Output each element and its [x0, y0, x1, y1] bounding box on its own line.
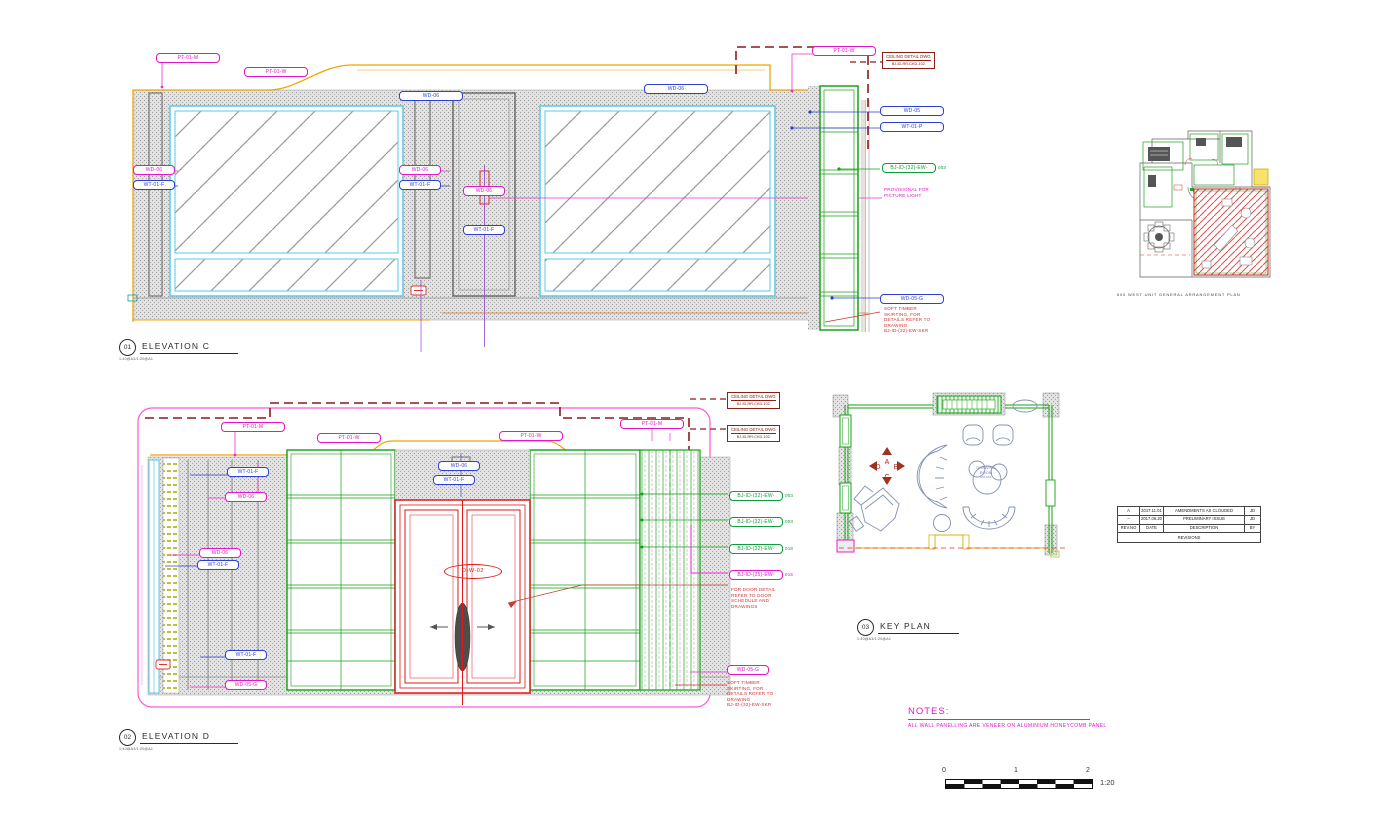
tag-wd06-c-top2: WD-06 — [644, 84, 708, 94]
rev-by: JD — [1245, 507, 1260, 515]
note-provisional: PROVISIONAL FOR PICTURE LIGHT — [884, 187, 929, 198]
ceiling-detail-ref-d1: CEILING DETAIL DWG BJ-ID-RR-CKD-102 — [727, 392, 780, 409]
ceiling-detail-ref-c: CEILING DETAIL DWG BJ-ID-RR-CKD-102 — [882, 52, 935, 69]
scale-ratio: 1:20 — [1100, 778, 1115, 787]
rev-date: 2017.11.01 — [1140, 507, 1164, 515]
elevation-c-drawing — [120, 40, 890, 362]
title-key-plan: 03 KEY PLAN — [857, 619, 959, 636]
cei-line1: CEILING DETAIL DWG — [731, 427, 776, 433]
tag-pt01m-d2: PT-01-M — [620, 419, 684, 429]
rev-header-desc: DESCRIPTION — [1164, 525, 1245, 533]
ga-plan-caption: 600 WEST UNIT GENERAL ARRANGEMENT PLAN — [1117, 292, 1241, 297]
rev-no: – — [1118, 516, 1140, 524]
title-d-name: ELEVATION D — [140, 731, 238, 744]
rev-header-date: DATE — [1140, 525, 1164, 533]
title-elevation-c: 01 ELEVATION C — [119, 339, 238, 356]
revisions-table: A 2017.11.01 AMENDMENTS AS CLOUDED JD – … — [1117, 506, 1261, 543]
scale-tick-1: 1 — [1014, 767, 1018, 774]
ga-plan-drawing — [1130, 125, 1280, 300]
ref-ew32-d3: BJ-ID-(32)-EW-018 — [729, 544, 793, 554]
room-code: RM-05A — [962, 475, 1010, 480]
tag-wt01f-c-left: WT-01-F — [133, 180, 175, 190]
tag-pt01w-c: PT-01-W — [244, 67, 308, 77]
glass-panel-left — [170, 106, 403, 296]
revision-header-row: REV.NO DATE DESCRIPTION BY — [1118, 525, 1260, 534]
door-tag-oval: D-W-02 — [444, 564, 502, 579]
title-c-number: 01 — [119, 339, 136, 356]
tag-wt01f-d2: WT-01-F — [197, 560, 239, 570]
scale-bar — [945, 779, 1093, 789]
key-plan-drawing: A B C D — [825, 385, 1075, 585]
ceiling-detail-ref-d2: CEILING DETAIL DWG BJ-ID-RR-CKD-102 — [727, 425, 780, 442]
revision-row: – 2017.06.20 PRELIMINARY ISSUE JD — [1118, 516, 1260, 525]
elevation-direction-marker: A B C D — [869, 447, 905, 485]
green-panel-right — [530, 450, 640, 690]
revision-row: A 2017.11.01 AMENDMENTS AS CLOUDED JD — [1118, 507, 1260, 516]
note-skirting-c: SOFT TIMBER SKIRTING, FOR DETAILS REFER … — [884, 306, 930, 334]
title-k-number: 03 — [857, 619, 874, 636]
cei-line2: BJ-ID-RR-CKD-102 — [731, 400, 776, 407]
dir-letter-c: C — [884, 474, 889, 481]
tag-wt01p-c: WT-01-P — [880, 122, 944, 132]
joinery-shutter-panel — [808, 86, 858, 330]
tag-wt01f-c-door: WT-01-F — [463, 225, 505, 235]
dir-letter-b: B — [894, 464, 899, 471]
tag-wt01f-d3: WT-01-F — [225, 650, 267, 660]
green-panel-left — [287, 450, 395, 690]
tag-wt01f-d1: WT-01-F — [227, 467, 269, 477]
rev-by: JD — [1245, 516, 1260, 524]
ref-ew32-d1: BJ-ID-(32)-EW-003 — [729, 491, 793, 501]
tag-wd06-c-left: WD-06 — [133, 165, 175, 175]
glass-panel-right — [540, 106, 775, 296]
tag-wt01f-c-mid: WT-01-F — [399, 180, 441, 190]
grand-piano — [861, 488, 899, 531]
cei-line2: BJ-ID-RR-CKD-102 — [731, 433, 776, 440]
cad-sheet: A B C D — [0, 0, 1389, 828]
revisions-footer: REVISIONS — [1118, 533, 1260, 542]
title-elevation-d: 02 ELEVATION D — [119, 729, 238, 746]
tag-wd05g-d2: WD-05-G — [727, 665, 769, 675]
tag-pt01m-d1: PT-01-M — [221, 422, 285, 432]
rev-header-no: REV.NO — [1118, 525, 1140, 533]
cei-line2: BJ-ID-RR-CKD-102 — [886, 60, 931, 67]
rev-date: 2017.06.20 — [1140, 516, 1164, 524]
tag-wd05-c: WD-05 — [880, 106, 944, 116]
scale-tick-2: 2 — [1086, 767, 1090, 774]
tag-wd06-d1: WD-06 — [225, 492, 267, 502]
tag-wd06-d-center: WD-06 — [438, 461, 480, 471]
room-label: DRAWING ROOM RM-05A — [962, 466, 1010, 480]
cei-line1: CEILING DETAIL DWG — [886, 54, 931, 60]
title-d-number: 02 — [119, 729, 136, 746]
tag-wd06-d2: WD-06 — [199, 548, 241, 558]
tag-wd06-c-top: WD-06 — [399, 91, 463, 101]
dir-letter-d: D — [875, 464, 880, 471]
rev-desc: PRELIMINARY ISSUE — [1164, 516, 1245, 524]
title-c-scale: 1:40@A3/1:20@A1 — [119, 357, 153, 361]
notes-title: NOTES: — [908, 706, 1090, 720]
title-k-scale: 1:40@A3/1:20@A1 — [857, 637, 891, 641]
tag-wt01f-d-center: WT-01-F — [433, 475, 475, 485]
tag-pt01w-d2: PT-01-W — [499, 431, 563, 441]
tag-pt01m-c: PT-01-M — [156, 53, 220, 63]
title-k-name: KEY PLAN — [878, 621, 959, 634]
tag-pt01w-d1: PT-01-W — [317, 433, 381, 443]
key-plan-walls — [845, 405, 1052, 553]
rev-desc: AMENDMENTS AS CLOUDED — [1164, 507, 1245, 515]
ref-ew32-d2: BJ-ID-(32)-EW-003 — [729, 517, 793, 527]
tag-wd06-c-door: WD-06 — [463, 186, 505, 196]
cei-line1: CEILING DETAIL DWG — [731, 394, 776, 400]
rev-no: A — [1118, 507, 1140, 515]
elevation-d-drawing — [130, 385, 830, 730]
note-skirting-d: SOFT TIMBER SKIRTING, FOR DETAILS REFER … — [727, 680, 773, 708]
tag-wd05g-c: WD-05-G — [880, 294, 944, 304]
scale-tick-0: 0 — [942, 767, 946, 774]
ref-ew32-c: BJ-ID-(32)-EW-003 — [882, 163, 946, 173]
note-door-detail: FOR DOOR DETAIL REFER TO DOOR SCHEDULE A… — [731, 587, 776, 609]
title-d-scale: 1:40@A3/1:20@A1 — [119, 747, 153, 751]
tag-pt01w-c2: PT-01-W — [812, 46, 876, 56]
tag-wd05g-d1: WD-05-G — [225, 680, 267, 690]
title-c-name: ELEVATION C — [140, 341, 238, 354]
rev-header-by: BY — [1245, 525, 1260, 533]
tag-wd06-c-mid: WD-06 — [399, 165, 441, 175]
ref-ew25-d: BJ-ID-(25)-EW-015 — [729, 570, 793, 580]
dir-letter-a: A — [885, 459, 890, 466]
notes-body: ALL WALL PANELLING ARE VENEER ON ALUMINI… — [908, 723, 1107, 729]
